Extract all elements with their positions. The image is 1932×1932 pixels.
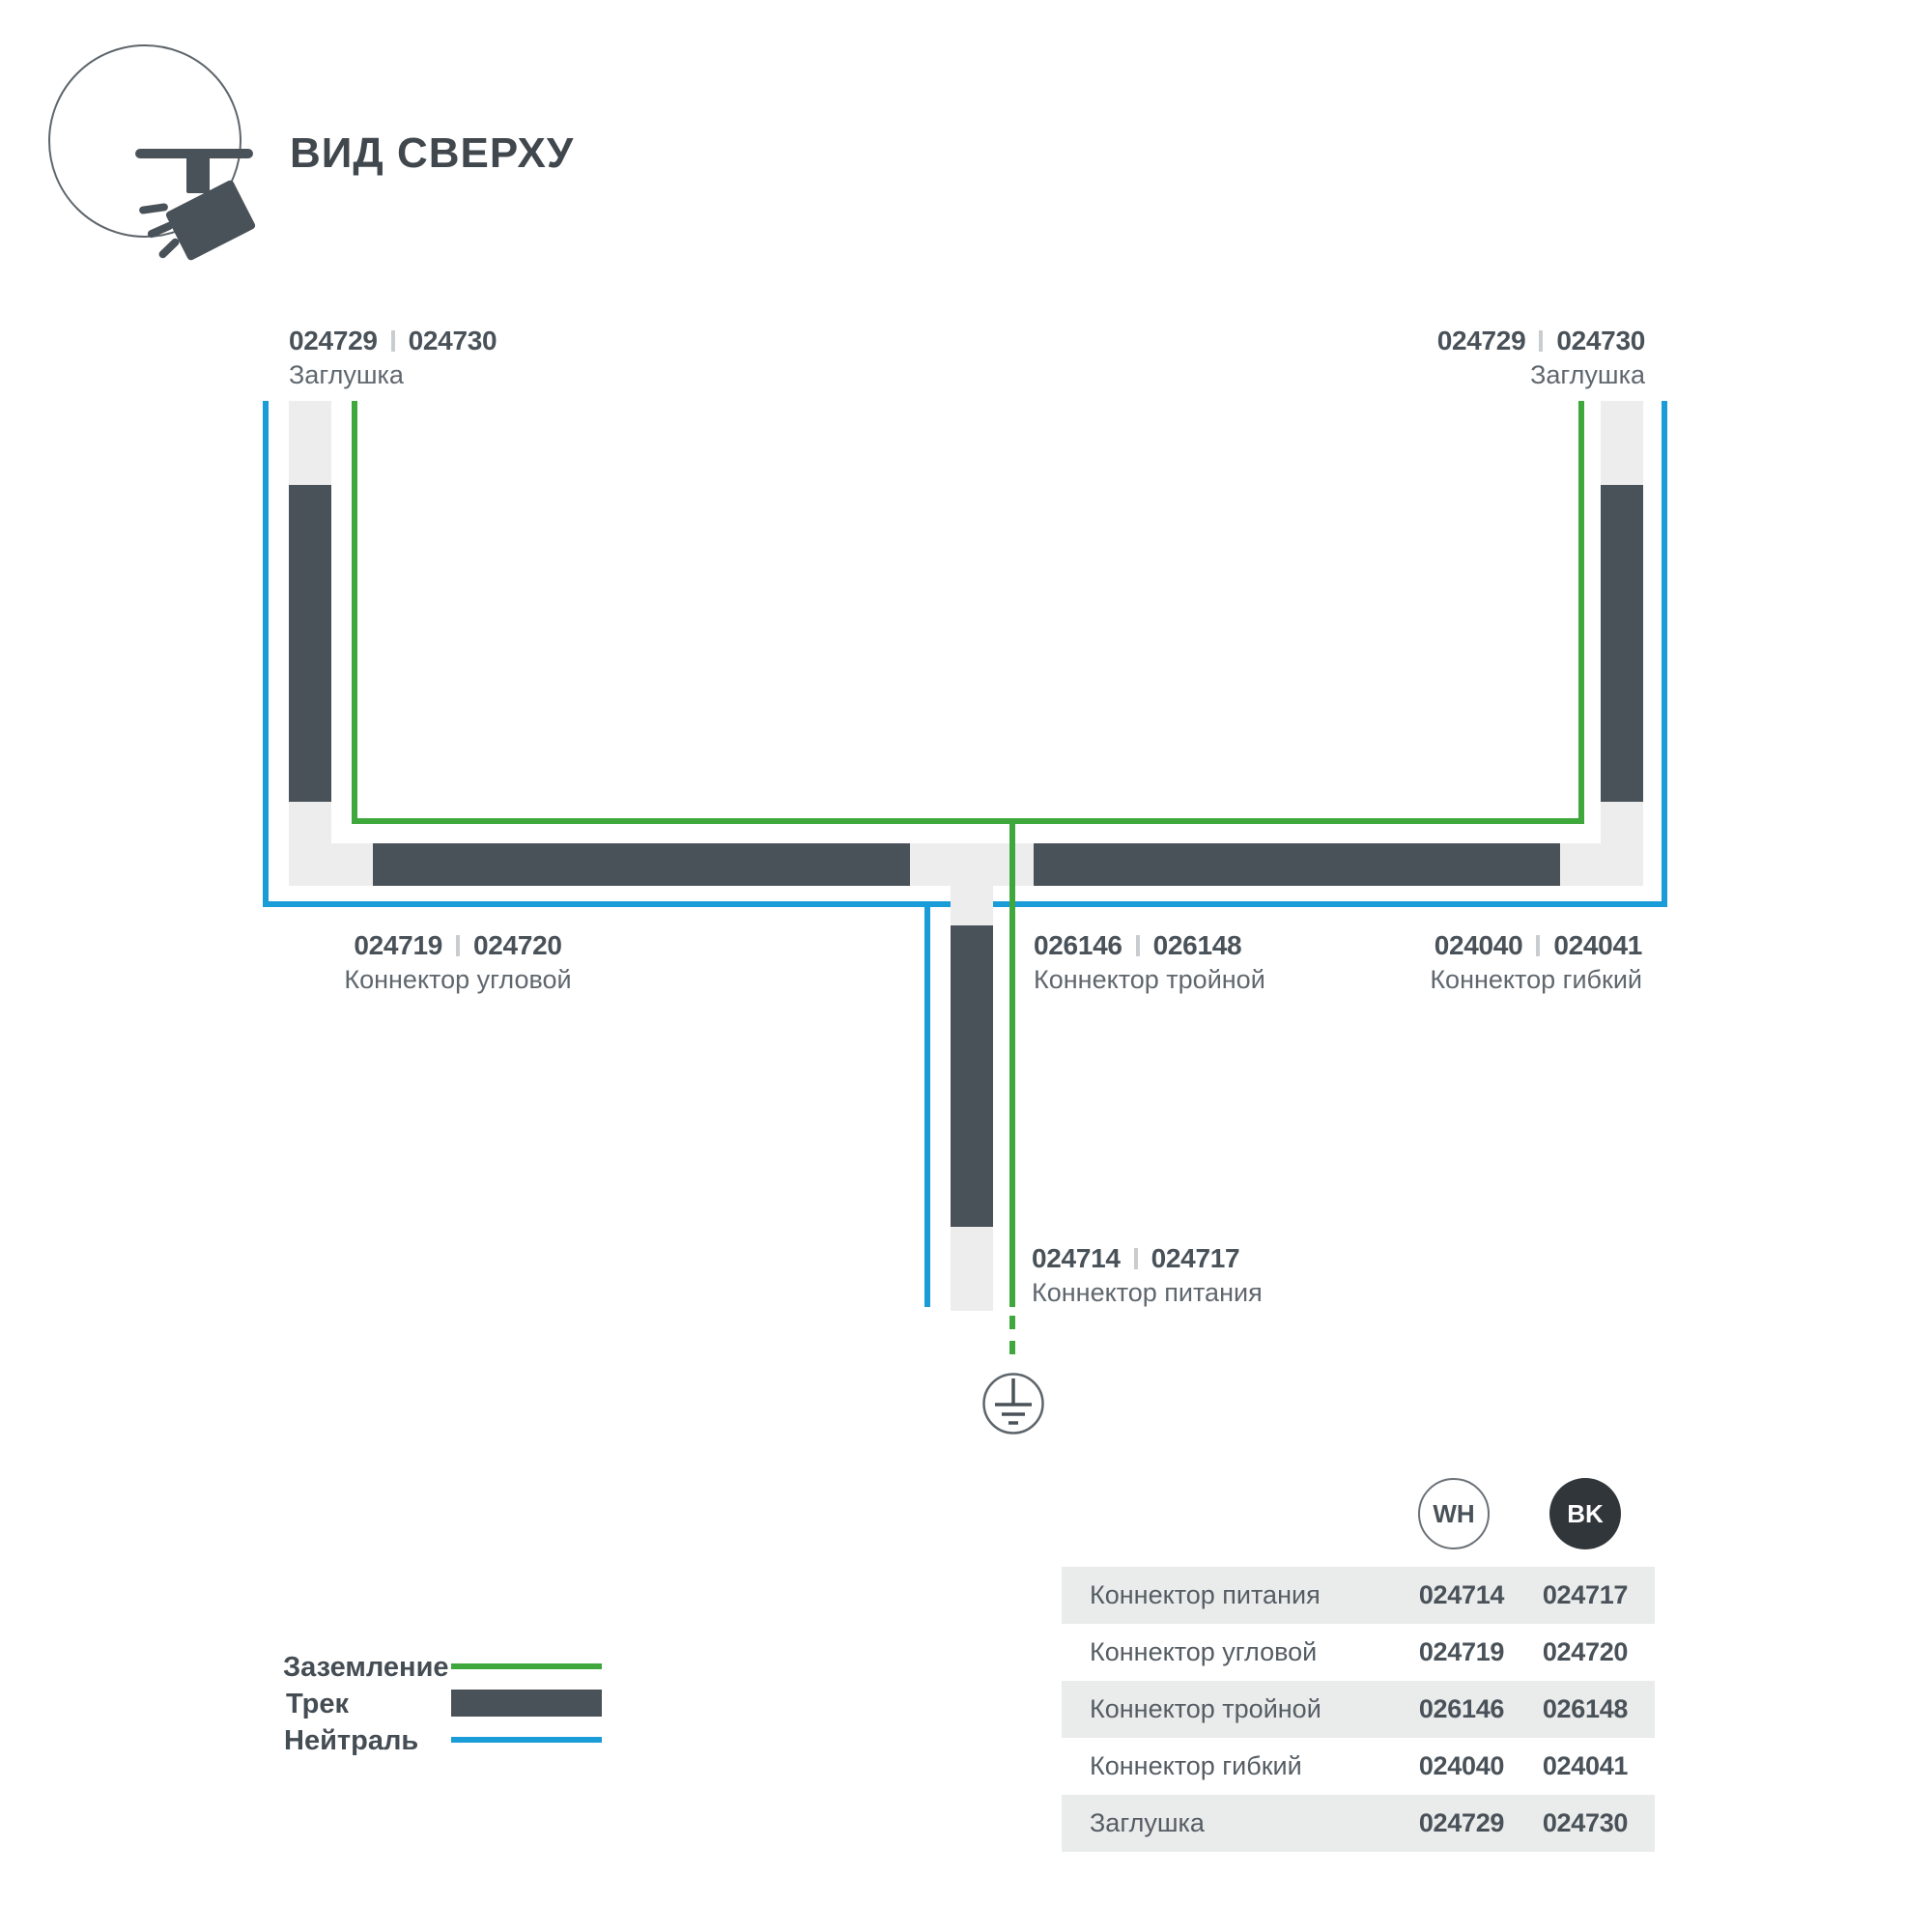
light-ray-icon <box>147 221 175 240</box>
code-bk: 024730 <box>409 326 497 355</box>
ground-line-right <box>1578 401 1584 824</box>
page: ВИД СВЕРХУ 024729024730 Заглушка 0247290… <box>0 0 1932 1932</box>
part-name: Коннектор питания <box>1032 1278 1263 1307</box>
row-name: Заглушка <box>1090 1808 1396 1838</box>
part-name: Заглушка <box>1437 360 1645 389</box>
legend-track-label: Трек <box>286 1689 349 1720</box>
neutral-line-feed <box>924 907 930 1307</box>
row-name: Коннектор тройной <box>1090 1694 1396 1724</box>
ground-line-horizontal <box>352 818 1584 824</box>
code-divider <box>456 935 460 956</box>
label-power-connector: 024714024717 Коннектор питания <box>1032 1244 1263 1307</box>
row-code-bk: 024717 <box>1527 1580 1643 1610</box>
table-row: Коннектор тройной 026146 026148 <box>1062 1681 1655 1738</box>
row-name: Коннектор гибкий <box>1090 1751 1396 1781</box>
track-segment-bottom-right <box>1034 843 1560 886</box>
label-flexible-connector: 024040024041 Коннектор гибкий <box>1430 931 1642 994</box>
ground-line-dashed <box>1009 1316 1015 1366</box>
legend-neutral-label: Нейтраль <box>284 1725 418 1757</box>
part-name: Коннектор угловой <box>313 965 603 994</box>
corner-connector-left <box>289 843 373 886</box>
row-code-bk: 024041 <box>1527 1751 1643 1781</box>
legend-neutral-swatch <box>451 1737 602 1743</box>
row-code-wh: 024719 <box>1404 1637 1520 1667</box>
page-title: ВИД СВЕРХУ <box>290 129 574 178</box>
row-name: Коннектор угловой <box>1090 1637 1396 1667</box>
row-code-wh: 024040 <box>1404 1751 1520 1781</box>
code-wh: 024729 <box>289 326 378 355</box>
code-wh: 024040 <box>1435 930 1523 960</box>
part-name: Заглушка <box>289 360 497 389</box>
code-bk: 024717 <box>1151 1243 1240 1273</box>
part-name: Коннектор гибкий <box>1430 965 1642 994</box>
row-name: Коннектор питания <box>1090 1580 1396 1610</box>
spotlight-head-icon <box>165 179 257 261</box>
label-corner-connector: 024719024720 Коннектор угловой <box>313 931 603 994</box>
row-code-bk: 026148 <box>1527 1694 1643 1724</box>
code-wh: 024719 <box>354 930 442 960</box>
legend-ground-swatch <box>451 1663 602 1669</box>
code-bk: 026148 <box>1153 930 1242 960</box>
table-row: Коннектор угловой 024719 024720 <box>1062 1624 1655 1681</box>
code-bk: 024041 <box>1553 930 1642 960</box>
product-table: Коннектор питания 024714 024717 Коннекто… <box>1062 1567 1655 1852</box>
code-wh: 024714 <box>1032 1243 1121 1273</box>
light-ray-icon <box>157 237 181 260</box>
row-code-bk: 024730 <box>1527 1808 1643 1838</box>
code-divider <box>1536 935 1540 956</box>
neutral-line-left <box>263 401 269 907</box>
ground-line-feed <box>1009 818 1015 1307</box>
table-row: Коннектор питания 024714 024717 <box>1062 1567 1655 1624</box>
label-end-cap-left: 024729024730 Заглушка <box>289 327 497 389</box>
label-end-cap-right: 024729024730 Заглушка <box>1437 327 1645 389</box>
light-ray-icon <box>139 203 169 214</box>
ground-icon <box>981 1372 1045 1435</box>
part-name: Коннектор тройной <box>1034 965 1265 994</box>
code-divider <box>1539 330 1543 352</box>
row-code-wh: 024729 <box>1404 1808 1520 1838</box>
column-badge-black: BK <box>1549 1478 1621 1549</box>
table-row: Коннектор гибкий 024040 024041 <box>1062 1738 1655 1795</box>
legend-track-swatch <box>451 1690 602 1717</box>
code-bk: 024730 <box>1556 326 1645 355</box>
code-wh: 024729 <box>1437 326 1526 355</box>
track-segment-right <box>1601 485 1643 802</box>
row-code-bk: 024720 <box>1527 1637 1643 1667</box>
track-segment-bottom-left <box>373 843 910 886</box>
code-wh: 026146 <box>1034 930 1122 960</box>
code-divider <box>391 330 395 352</box>
ground-line-left <box>352 401 357 824</box>
table-row: Заглушка 024729 024730 <box>1062 1795 1655 1852</box>
code-bk: 024720 <box>473 930 562 960</box>
spotlight-stem-icon <box>186 155 210 193</box>
legend-ground-label: Заземление <box>283 1652 449 1684</box>
row-code-wh: 026146 <box>1404 1694 1520 1724</box>
track-light-icon <box>48 44 241 238</box>
code-divider <box>1136 935 1140 956</box>
neutral-line-right <box>1662 401 1667 907</box>
track-segment-left <box>289 485 331 802</box>
row-code-wh: 024714 <box>1404 1580 1520 1610</box>
label-triple-connector: 026146026148 Коннектор тройной <box>1034 931 1265 994</box>
code-divider <box>1134 1248 1138 1269</box>
column-badge-white: WH <box>1418 1478 1490 1549</box>
track-segment-center <box>951 925 993 1227</box>
